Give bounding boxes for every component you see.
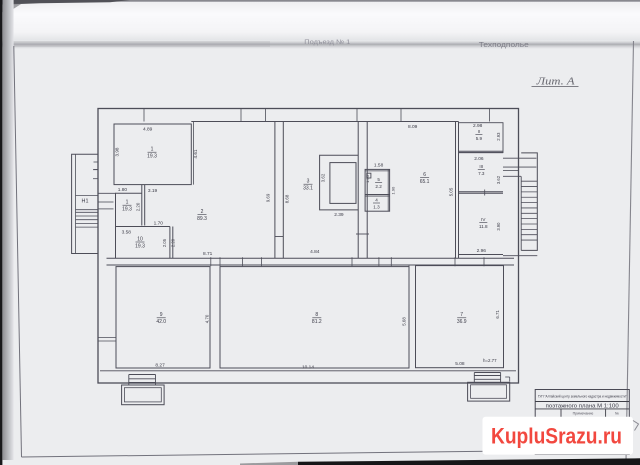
- svg-text:1.3: 1.3: [373, 204, 380, 209]
- svg-text:1.70: 1.70: [154, 220, 164, 226]
- svg-text:8.27: 8.27: [155, 362, 165, 368]
- svg-text:3: 3: [307, 179, 310, 185]
- svg-text:Лит. А: Лит. А: [535, 76, 575, 87]
- svg-text:89.3: 89.3: [197, 216, 207, 222]
- svg-text:33.1: 33.1: [303, 186, 313, 192]
- svg-text:6.71: 6.71: [495, 310, 500, 319]
- svg-text:7.3: 7.3: [478, 171, 485, 176]
- svg-text:4: 4: [375, 197, 378, 202]
- svg-text:2.39: 2.39: [334, 212, 344, 218]
- svg-text:36.9: 36.9: [457, 319, 467, 325]
- svg-text:1.58: 1.58: [374, 163, 384, 169]
- svg-text:65.1: 65.1: [420, 179, 430, 185]
- svg-text:9: 9: [160, 312, 163, 318]
- svg-text:3.19: 3.19: [148, 188, 158, 194]
- svg-text:5.9: 5.9: [476, 136, 483, 141]
- svg-text:8: 8: [315, 312, 318, 318]
- svg-text:1.90: 1.90: [391, 186, 396, 195]
- svg-text:III: III: [479, 164, 483, 169]
- svg-text:2.2: 2.2: [375, 184, 382, 189]
- svg-text:2.20: 2.20: [136, 202, 141, 211]
- svg-text:4.61: 4.61: [193, 149, 198, 158]
- svg-text:10: 10: [137, 236, 143, 242]
- svg-text:2.05: 2.05: [162, 238, 167, 247]
- svg-text:2.06: 2.06: [474, 156, 484, 162]
- svg-text:Примечание: Примечание: [573, 412, 594, 416]
- svg-text:2.98: 2.98: [473, 123, 483, 129]
- svg-text:4.70: 4.70: [205, 314, 210, 323]
- svg-text:5.08: 5.08: [455, 361, 465, 367]
- svg-text:8.09: 8.09: [408, 124, 418, 130]
- svg-text:Подъезд № 1: Подъезд № 1: [304, 39, 350, 46]
- svg-text:11.8: 11.8: [479, 224, 488, 229]
- svg-text:Техподполье: Техподполье: [479, 42, 529, 49]
- svg-text:1.80: 1.80: [118, 187, 128, 193]
- svg-text:3.62: 3.62: [320, 173, 325, 182]
- svg-text:10.14: 10.14: [302, 364, 314, 370]
- svg-text:2.96: 2.96: [477, 248, 487, 254]
- svg-text:8.68: 8.68: [284, 194, 289, 203]
- svg-text:19.3: 19.3: [122, 207, 132, 213]
- svg-text:3.98: 3.98: [114, 147, 119, 156]
- svg-text:4.84: 4.84: [310, 249, 320, 255]
- svg-text:19.3: 19.3: [135, 243, 145, 249]
- svg-text:3.90: 3.90: [496, 222, 501, 231]
- svg-text:ГУП "Алтайский центр земельног: ГУП "Алтайский центр земельного кадастра…: [538, 393, 627, 398]
- svg-text:5: 5: [377, 177, 380, 182]
- svg-text:1: 1: [151, 147, 154, 153]
- svg-text:Н1: Н1: [82, 199, 89, 205]
- svg-text:8.71: 8.71: [203, 251, 213, 257]
- svg-text:2: 2: [201, 209, 204, 215]
- svg-text:поэтажного плана М 1:100: поэтажного плана М 1:100: [546, 403, 619, 409]
- svg-text:№: №: [615, 412, 619, 416]
- svg-text:5.68: 5.68: [402, 317, 407, 326]
- svg-text:KupluSrazu.ru: KupluSrazu.ru: [491, 424, 622, 449]
- svg-text:19.3: 19.3: [147, 154, 157, 160]
- svg-text:9.69: 9.69: [265, 193, 270, 202]
- svg-text:4.89: 4.89: [143, 127, 153, 133]
- svg-text:3.62: 3.62: [496, 175, 501, 184]
- svg-text:1.50: 1.50: [365, 174, 370, 183]
- svg-text:1: 1: [126, 200, 129, 206]
- svg-text:5.05: 5.05: [449, 187, 454, 196]
- svg-text:II: II: [478, 129, 481, 134]
- svg-text:2.20: 2.20: [171, 238, 176, 247]
- svg-text:2.93: 2.93: [496, 132, 501, 141]
- svg-text:6: 6: [423, 172, 426, 178]
- svg-text:h=2.77: h=2.77: [483, 358, 497, 363]
- svg-text:42.0: 42.0: [156, 319, 166, 325]
- svg-text:7: 7: [460, 312, 463, 318]
- svg-text:81.2: 81.2: [312, 319, 322, 325]
- svg-text:3.58: 3.58: [122, 229, 132, 235]
